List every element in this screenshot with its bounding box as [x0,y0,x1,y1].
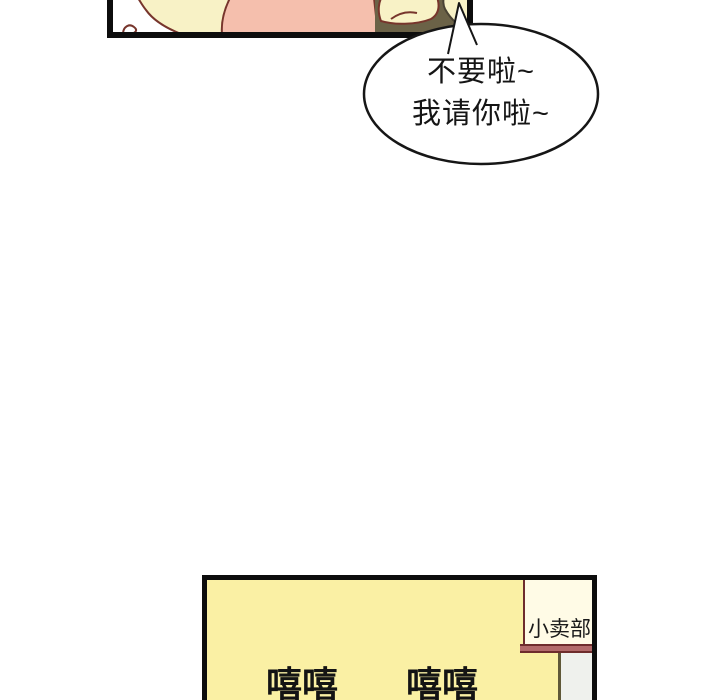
sfx-giggle-2: 嘻嘻 [406,666,478,700]
shop-sign-label: 小卖部 [528,619,591,641]
shop-sign-awning-bar [520,644,592,653]
shop-sign: 小卖部 [523,580,592,644]
doorway-gray-strip [558,653,592,700]
bottom-panel: 小卖部 嘻嘻 嘻嘻 [202,575,597,700]
sfx-giggle-1: 嘻嘻 [266,666,338,700]
speech-line-1: 不要啦~ [365,51,597,93]
top-panel-art [0,0,720,175]
pink-torso-shape [222,0,378,34]
comic-page: 不要啦~ 我请你啦~ 小卖部 嘻嘻 嘻嘻 [0,0,720,700]
speech-bubble-text: 不要啦~ 我请你啦~ [365,51,597,135]
arm-shape [138,0,231,34]
speech-line-2: 我请你啦~ [365,93,597,135]
